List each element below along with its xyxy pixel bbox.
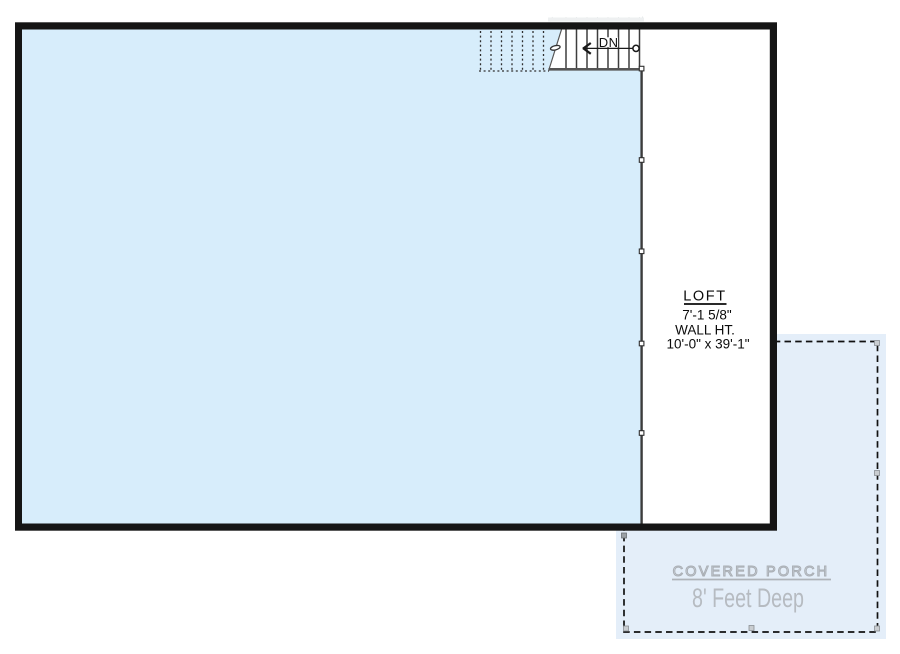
svg-text:8' Feet Deep: 8' Feet Deep xyxy=(692,583,804,613)
svg-text:WALL HT.: WALL HT. xyxy=(675,323,735,338)
svg-text:COVERED PORCH: COVERED PORCH xyxy=(673,564,830,580)
svg-text:7'-1 5/8": 7'-1 5/8" xyxy=(682,308,732,323)
svg-text:DN: DN xyxy=(599,35,619,50)
svg-text:LOFT: LOFT xyxy=(683,289,726,305)
svg-text:10'-0" x 39'-1": 10'-0" x 39'-1" xyxy=(666,337,749,352)
